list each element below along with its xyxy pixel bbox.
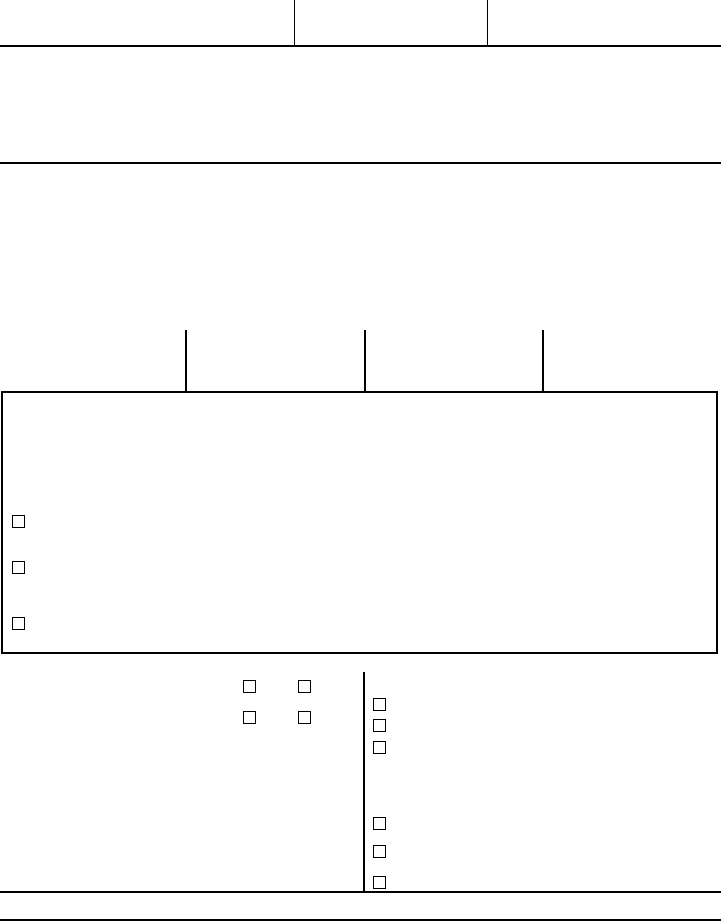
right-column-lower-checkbox-1[interactable] bbox=[373, 817, 386, 830]
boxed-section-checkbox-3[interactable] bbox=[12, 617, 25, 630]
footer-rule-2 bbox=[0, 919, 721, 921]
footer-rule-1 bbox=[0, 891, 721, 893]
header-bottom-rule bbox=[0, 45, 721, 47]
right-column-upper-checkbox-2[interactable] bbox=[373, 719, 386, 732]
right-column-lower-checkbox-2[interactable] bbox=[373, 845, 386, 858]
section-rule bbox=[0, 162, 721, 164]
header-column-divider-2 bbox=[487, 0, 488, 46]
blank-form-page bbox=[0, 0, 721, 924]
left-grid-checkbox-row1-col2[interactable] bbox=[298, 680, 311, 693]
boxed-section bbox=[1, 391, 718, 654]
header-column-divider-1 bbox=[294, 0, 295, 46]
left-grid-checkbox-row2-col1[interactable] bbox=[243, 711, 256, 724]
column-tick-1 bbox=[185, 330, 187, 392]
right-column-lower-checkbox-3[interactable] bbox=[373, 876, 386, 889]
column-tick-3 bbox=[542, 330, 544, 392]
left-grid-checkbox-row1-col1[interactable] bbox=[243, 680, 256, 693]
boxed-section-checkbox-1[interactable] bbox=[12, 515, 25, 528]
left-grid-checkbox-row2-col2[interactable] bbox=[298, 711, 311, 724]
right-column-upper-checkbox-1[interactable] bbox=[373, 698, 386, 711]
boxed-section-checkbox-2[interactable] bbox=[12, 561, 25, 574]
column-tick-2 bbox=[364, 330, 366, 392]
right-column-upper-checkbox-3[interactable] bbox=[373, 741, 386, 754]
lower-section-divider bbox=[363, 672, 365, 893]
